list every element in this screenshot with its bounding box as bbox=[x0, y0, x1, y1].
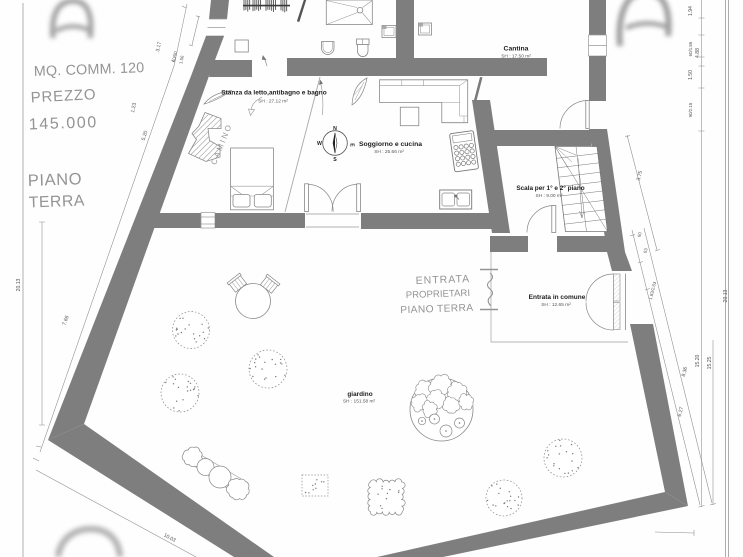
svg-text:SH : 151.58 m²: SH : 151.58 m² bbox=[343, 399, 376, 405]
svg-text:15.25: 15.25 bbox=[707, 356, 713, 369]
svg-text:W: W bbox=[317, 141, 322, 147]
svg-text:SH : 12.65 m²: SH : 12.65 m² bbox=[541, 302, 571, 308]
svg-text:SH : 17.50 m²: SH : 17.50 m² bbox=[501, 54, 531, 60]
svg-text:15.20: 15.20 bbox=[695, 354, 701, 367]
svg-text:20.13: 20.13 bbox=[723, 289, 729, 302]
svg-text:PIANO: PIANO bbox=[28, 170, 83, 190]
svg-text:Scala per 1° e 2° piano: Scala per 1° e 2° piano bbox=[516, 184, 584, 192]
svg-text:PREZZO: PREZZO bbox=[30, 86, 96, 106]
svg-text:PROPRIETARI: PROPRIETARI bbox=[406, 288, 471, 301]
svg-text:TERRA: TERRA bbox=[29, 193, 86, 212]
svg-text:Soggiorno e cucina: Soggiorno e cucina bbox=[359, 141, 422, 148]
svg-text:ENTRATA: ENTRATA bbox=[415, 273, 470, 287]
svg-text:4.88: 4.88 bbox=[695, 48, 701, 58]
svg-text:60/1.55: 60/1.55 bbox=[688, 41, 693, 56]
svg-text:SH : 27.12 m²: SH : 27.12 m² bbox=[258, 99, 288, 105]
svg-text:1.94: 1.94 bbox=[688, 6, 694, 16]
svg-text:90/2.15: 90/2.15 bbox=[688, 102, 693, 117]
svg-text:Stanza da letto,antibagno e ba: Stanza da letto,antibagno e bagno bbox=[221, 90, 326, 97]
svg-text:20.13: 20.13 bbox=[16, 278, 22, 291]
svg-text:E: E bbox=[349, 143, 355, 147]
svg-text:145.000: 145.000 bbox=[29, 114, 99, 133]
svg-text:N: N bbox=[333, 126, 337, 132]
svg-text:Entrata in comune: Entrata in comune bbox=[529, 294, 586, 301]
svg-text:S: S bbox=[333, 157, 337, 163]
svg-text:giardino: giardino bbox=[347, 391, 372, 398]
svg-text:1.50: 1.50 bbox=[688, 70, 694, 80]
svg-text:Cantina: Cantina bbox=[504, 46, 529, 53]
svg-text:SH : 25.66 m²: SH : 25.66 m² bbox=[374, 149, 404, 155]
svg-text:SH : 9.00 m²: SH : 9.00 m² bbox=[536, 193, 563, 199]
